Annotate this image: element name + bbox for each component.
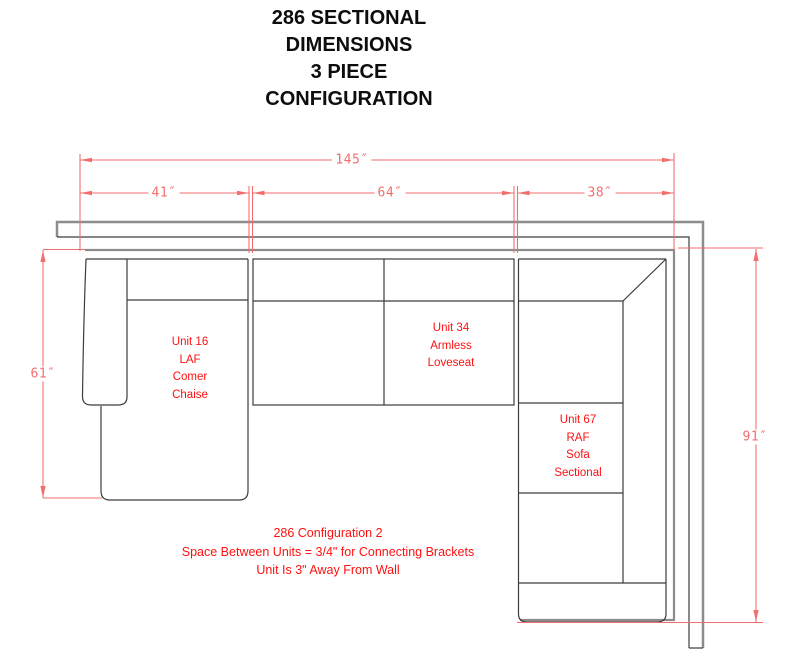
dim-right-depth: 91″ — [740, 430, 771, 445]
wall — [57, 222, 703, 648]
unit-16-outline — [82, 259, 248, 500]
unit-16-label: Unit 16 LAF Comer Chaise — [172, 334, 208, 404]
configuration-notes: 286 Configuration 2 Space Between Units … — [78, 524, 578, 580]
dim-chaise-width: 41″ — [149, 186, 180, 201]
diagram-canvas: 286 SECTIONAL DIMENSIONS 3 PIECE CONFIGU… — [0, 0, 788, 661]
dim-left-depth: 61″ — [28, 367, 59, 382]
dim-sofa-width: 38″ — [585, 186, 616, 201]
page-title: 286 SECTIONAL DIMENSIONS 3 PIECE CONFIGU… — [149, 5, 549, 113]
dim-total-width: 145″ — [332, 153, 371, 168]
unit-34-label: Unit 34 Armless Loveseat — [428, 320, 475, 373]
unit-67-label: Unit 67 RAF Sofa Sectional — [554, 412, 601, 482]
dim-loveseat-width: 64″ — [375, 186, 406, 201]
unit-34-outline — [253, 259, 514, 405]
